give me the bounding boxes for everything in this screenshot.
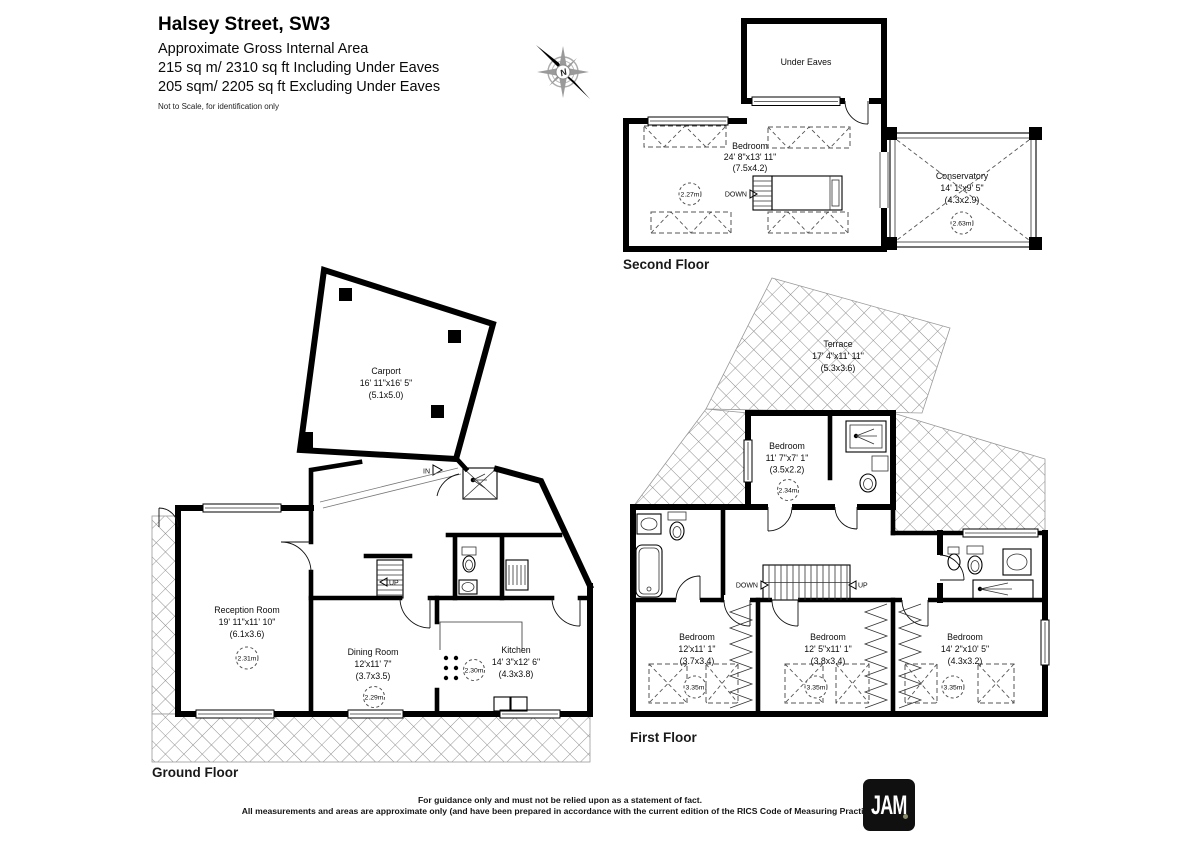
jam-logo-dot bbox=[903, 814, 908, 819]
bed bbox=[772, 176, 842, 210]
first-floor-label: First Floor bbox=[630, 730, 697, 745]
terrace-right-area bbox=[893, 413, 1045, 533]
disclaimer: For guidance only and must not be relied… bbox=[230, 795, 890, 817]
svg-text:2.30m: 2.30m bbox=[465, 668, 484, 675]
conservatory: Conservatory 14' 1"x9' 5" (4.3x2.9) 2.63… bbox=[884, 127, 1042, 250]
second-floor-label: Second Floor bbox=[623, 257, 710, 272]
terrace-left-area bbox=[633, 409, 748, 507]
jam-logo-text: JAM bbox=[871, 789, 907, 820]
first-floor-plan: Terrace 17' 4"x11' 11" (5.3x3.6) Bedroom… bbox=[630, 278, 1049, 745]
disclaimer-line1: For guidance only and must not be relied… bbox=[230, 795, 890, 806]
svg-text:(6.1x3.6): (6.1x3.6) bbox=[230, 629, 265, 639]
entrance-label: IN bbox=[423, 469, 430, 476]
carport-walls bbox=[300, 270, 493, 459]
paving-bottom bbox=[152, 714, 590, 762]
stairs-up-label: UP bbox=[389, 580, 399, 587]
room-label-kitchen: Kitchen 14' 3"x12' 6" (4.3x3.8) 2.30m bbox=[464, 645, 541, 681]
compass-rose: N bbox=[536, 45, 590, 99]
svg-text:Carport: Carport bbox=[371, 366, 401, 376]
svg-text:(3.7x3.4): (3.7x3.4) bbox=[680, 656, 715, 666]
svg-text:Bedroom: Bedroom bbox=[732, 141, 768, 151]
svg-text:(4.3x2.9): (4.3x2.9) bbox=[945, 195, 980, 205]
room-label-bedroom-middle: Bedroom 12' 5"x11' 1" (3.8x3.4) 3.35m bbox=[804, 632, 852, 698]
svg-text:14' 3"x12' 6": 14' 3"x12' 6" bbox=[492, 657, 540, 667]
svg-text:Kitchen: Kitchen bbox=[501, 645, 530, 655]
room-label-reception: Reception Room 19' 11"x11' 10" (6.1x3.6)… bbox=[214, 605, 280, 669]
room-label-dining: Dining Room 12'x11' 7" (3.7x3.5) 2.29m bbox=[348, 647, 399, 708]
svg-text:(4.3x3.8): (4.3x3.8) bbox=[499, 669, 534, 679]
svg-text:12'x11' 7": 12'x11' 7" bbox=[354, 659, 391, 669]
jam-logo: JAM bbox=[863, 779, 915, 831]
under-eaves-label: Under Eaves bbox=[781, 57, 832, 67]
svg-text:17' 4"x11' 11": 17' 4"x11' 11" bbox=[812, 351, 864, 361]
svg-text:24' 8"x13' 11": 24' 8"x13' 11" bbox=[724, 152, 777, 162]
svg-text:(5.3x3.6): (5.3x3.6) bbox=[821, 363, 856, 373]
svg-text:2.34m: 2.34m bbox=[779, 488, 798, 495]
room-label-bedroom-right: Bedroom 14' 2"x10' 5" (4.3x3.2) 3.35m bbox=[941, 632, 989, 698]
disclaimer-line2: All measurements and areas are approxima… bbox=[230, 806, 890, 817]
room-label-bedroom-top: Bedroom 11' 7"x7' 1" (3.5x2.2) 2.34m bbox=[766, 441, 809, 501]
svg-text:Bedroom: Bedroom bbox=[947, 632, 983, 642]
floorplan-page: Halsey Street, SW3 Approximate Gross Int… bbox=[0, 0, 1200, 848]
kitchen-door bbox=[552, 598, 580, 626]
ground-floor-label: Ground Floor bbox=[152, 765, 239, 780]
svg-text:(5.1x5.0): (5.1x5.0) bbox=[369, 390, 404, 400]
svg-text:11' 7"x7' 1": 11' 7"x7' 1" bbox=[766, 453, 809, 463]
svg-text:Bedroom: Bedroom bbox=[769, 441, 805, 451]
svg-text:14' 2"x10' 5": 14' 2"x10' 5" bbox=[941, 644, 989, 654]
stairs-up: UP bbox=[377, 560, 403, 598]
svg-text:19' 11"x11' 10": 19' 11"x11' 10" bbox=[219, 617, 276, 627]
svg-text:(3.8x3.4): (3.8x3.4) bbox=[811, 656, 846, 666]
svg-text:2.27m: 2.27m bbox=[681, 192, 700, 199]
right-bathroom-fixtures bbox=[948, 546, 1033, 599]
room-label-bedroom-left: Bedroom 12'x11' 1" (3.7x3.4) 3.35m bbox=[678, 632, 715, 698]
svg-text:2.63m: 2.63m bbox=[953, 221, 972, 228]
second-floor-plan: DOWN 2.27m Under Eaves Bedroom 24' 8"x13… bbox=[623, 21, 1042, 272]
svg-text:Dining Room: Dining Room bbox=[348, 647, 399, 657]
ceiling-height-bedroom2: 2.27m bbox=[679, 183, 701, 205]
ground-floor-plan: Carport 16' 11"x16' 5" (5.1x5.0) IN bbox=[152, 270, 590, 780]
svg-text:(3.5x2.2): (3.5x2.2) bbox=[770, 465, 805, 475]
wc-fixtures bbox=[459, 547, 477, 594]
svg-text:3.35m: 3.35m bbox=[686, 685, 705, 692]
floor-plan-graphics: N bbox=[0, 0, 1200, 848]
stairs-down-label: DOWN bbox=[736, 583, 758, 590]
left-bathroom-fixtures bbox=[636, 512, 686, 597]
paving-left bbox=[152, 516, 178, 714]
shower-room-fixtures bbox=[846, 421, 888, 492]
svg-text:(4.3x3.2): (4.3x3.2) bbox=[948, 656, 983, 666]
svg-text:Reception Room: Reception Room bbox=[214, 605, 280, 615]
entry-shower bbox=[463, 468, 497, 499]
svg-text:2.31m: 2.31m bbox=[238, 656, 257, 663]
room-label-carport: Carport 16' 11"x16' 5" (5.1x5.0) bbox=[360, 366, 413, 400]
stairs-down: DOWN bbox=[725, 176, 772, 210]
stairs-down-label: DOWN bbox=[725, 192, 747, 199]
svg-text:2.29m: 2.29m bbox=[365, 695, 384, 702]
reception-door bbox=[281, 542, 311, 572]
stairs-up-label: UP bbox=[858, 583, 868, 590]
svg-text:3.35m: 3.35m bbox=[944, 685, 963, 692]
svg-text:12'x11' 1": 12'x11' 1" bbox=[678, 644, 715, 654]
utility-appliance bbox=[506, 560, 528, 590]
svg-text:Terrace: Terrace bbox=[823, 339, 852, 349]
stairs-first-floor: DOWN UP bbox=[736, 565, 868, 600]
svg-text:Bedroom: Bedroom bbox=[679, 632, 715, 642]
svg-text:Conservatory: Conservatory bbox=[936, 171, 989, 181]
dining-door bbox=[400, 598, 430, 628]
svg-text:Bedroom: Bedroom bbox=[810, 632, 846, 642]
svg-text:3.35m: 3.35m bbox=[807, 685, 826, 692]
svg-text:16' 11"x16' 5": 16' 11"x16' 5" bbox=[360, 378, 413, 388]
svg-text:14' 1"x9' 5": 14' 1"x9' 5" bbox=[940, 183, 983, 193]
svg-text:(7.5x4.2): (7.5x4.2) bbox=[733, 163, 768, 173]
svg-text:(3.7x3.5): (3.7x3.5) bbox=[356, 671, 391, 681]
svg-text:12' 5"x11' 1": 12' 5"x11' 1" bbox=[804, 644, 852, 654]
